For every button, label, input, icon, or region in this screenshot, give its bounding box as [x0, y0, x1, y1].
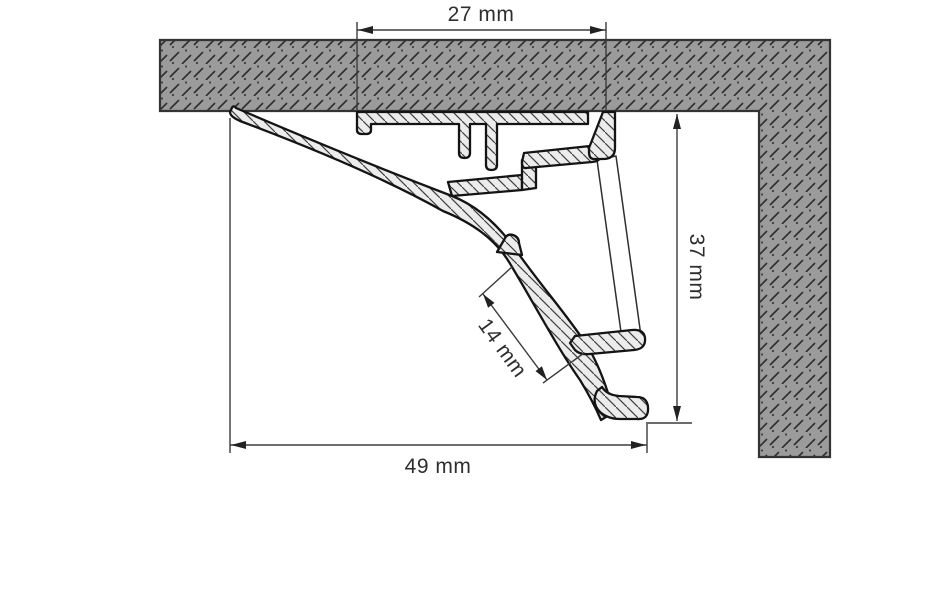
ceiling-and-wall-section: [160, 40, 830, 457]
dimension-label-37mm: 37 mm: [685, 234, 708, 301]
profile-ceiling-clip: [589, 112, 615, 159]
arrowhead-upper-icon: [483, 294, 495, 308]
dimension-27mm: 27 mm: [357, 3, 606, 34]
arrowhead-right-icon: [631, 441, 646, 449]
profile-cross-section-drawing: 27 mm 37 mm 14 mm 49 mm: [0, 0, 940, 590]
dimension-label-27mm: 27 mm: [448, 3, 515, 26]
profile-led-shelf: [570, 330, 645, 354]
arrowhead-right-icon: [590, 26, 605, 34]
technical-drawing-page: 27 mm 37 mm 14 mm 49 mm: [0, 0, 940, 590]
dimension-label-49mm: 49 mm: [405, 455, 472, 478]
arrowhead-down-icon: [673, 406, 681, 421]
diffuser-cover: [597, 156, 641, 336]
dimension-37mm: 37 mm: [646, 114, 708, 423]
arrowhead-left-icon: [231, 441, 246, 449]
dimension-49mm: 49 mm: [230, 118, 647, 478]
arrowhead-up-icon: [673, 114, 681, 129]
arrowhead-left-icon: [358, 26, 373, 34]
profile-bottom-hook: [595, 387, 648, 419]
profile-lower-step-strip: [448, 175, 522, 196]
aluminium-profile: [230, 106, 648, 420]
arrowhead-lower-icon: [536, 366, 548, 380]
